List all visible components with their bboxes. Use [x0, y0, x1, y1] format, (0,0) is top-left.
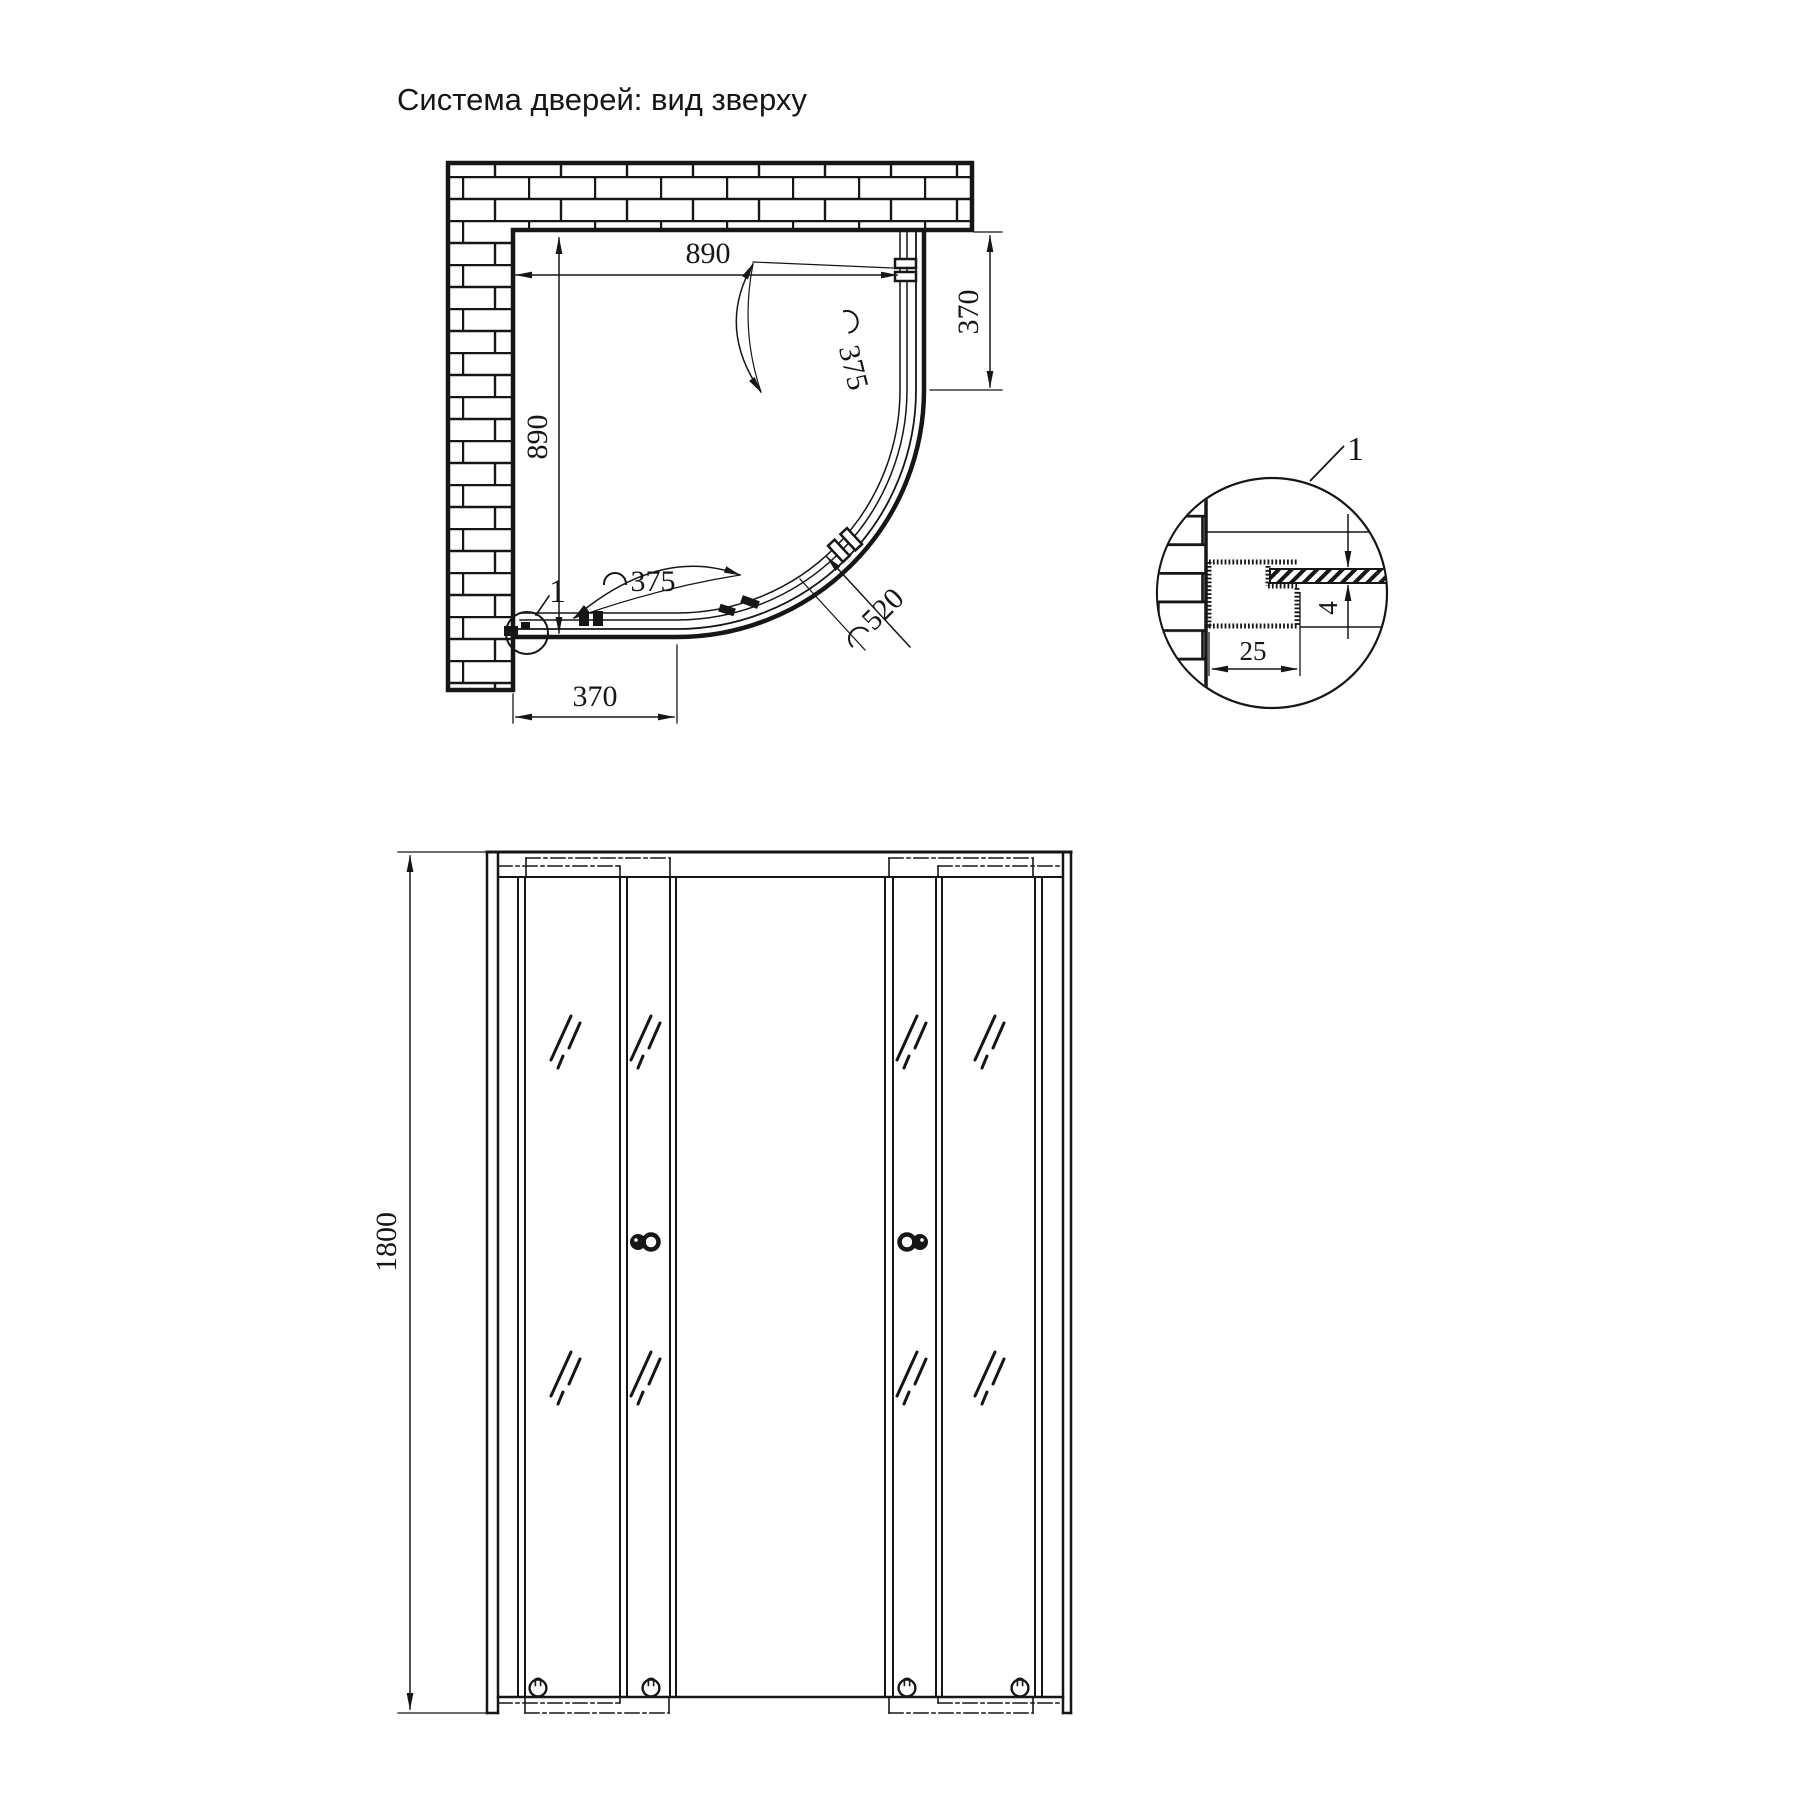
tray-inner-edge: [513, 232, 916, 629]
page-title: Система дверей: вид зверху: [397, 82, 807, 117]
dimension-arc-520: 520: [800, 557, 911, 655]
detail-view-node1: 25 4 1: [1150, 431, 1390, 720]
front-view-drawing: 1800: [370, 852, 1071, 1713]
detail-label-leader: [1310, 446, 1344, 481]
svg-text:375: 375: [832, 342, 875, 394]
door-rollers: [530, 1679, 1029, 1697]
door-knob-left: [630, 1234, 659, 1250]
dimension-370-right: 370: [930, 232, 1002, 390]
dimension-arc-375-upper: 375: [736, 262, 893, 393]
dimension-890-width: 890: [516, 237, 897, 275]
svg-text:25: 25: [1240, 636, 1267, 666]
tray-outer-edge: [513, 232, 924, 637]
svg-text:1800: 1800: [370, 1212, 403, 1272]
detail-glass-section: [1270, 569, 1390, 583]
door-knob-right: [900, 1234, 929, 1250]
panel-stiles: [518, 877, 1042, 1697]
dimension-370-bottom: 370: [513, 645, 677, 723]
svg-text:890: 890: [686, 237, 731, 270]
door-glass-curve-outer: [520, 232, 907, 620]
svg-text:370: 370: [573, 680, 618, 713]
svg-text:375: 375: [631, 565, 676, 598]
svg-text:890: 890: [521, 415, 554, 460]
top-view-drawing: 1 890 890 370 370: [448, 163, 1002, 723]
technical-drawing-shower-door-system: Система дверей: вид зверху: [0, 0, 1800, 1800]
front-frame: [487, 852, 1071, 1713]
svg-text:370: 370: [952, 290, 985, 335]
detail-brick-wall: [1150, 470, 1206, 720]
svg-text:4: 4: [1313, 601, 1343, 615]
dimension-1800-height: 1800: [370, 852, 487, 1713]
detail-marker-leader: [536, 596, 549, 615]
bottom-rails: [498, 1697, 1060, 1713]
detail-label: 1: [1347, 431, 1364, 468]
detail-marker-label: 1: [549, 573, 566, 610]
drawing-sheet: Система дверей: вид зверху: [0, 0, 1800, 1800]
top-hanger-rails: [498, 858, 1060, 877]
